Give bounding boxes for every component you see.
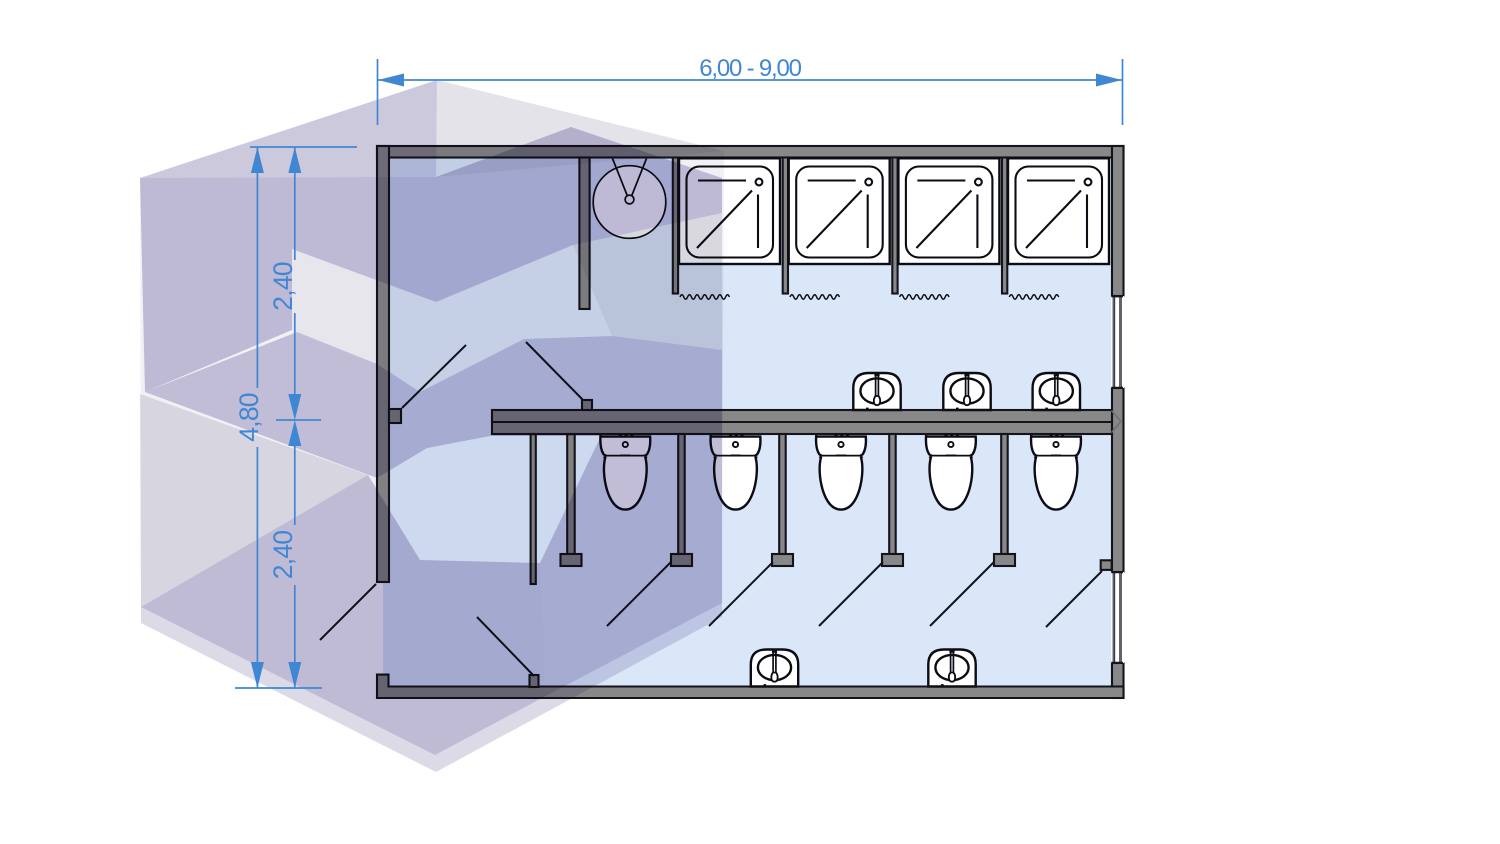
- svg-text:2,40: 2,40: [268, 262, 298, 310]
- svg-text:2,40: 2,40: [268, 531, 298, 579]
- svg-text:4,80: 4,80: [234, 393, 264, 441]
- svg-text:6,00 - 9,00: 6,00 - 9,00: [699, 55, 801, 82]
